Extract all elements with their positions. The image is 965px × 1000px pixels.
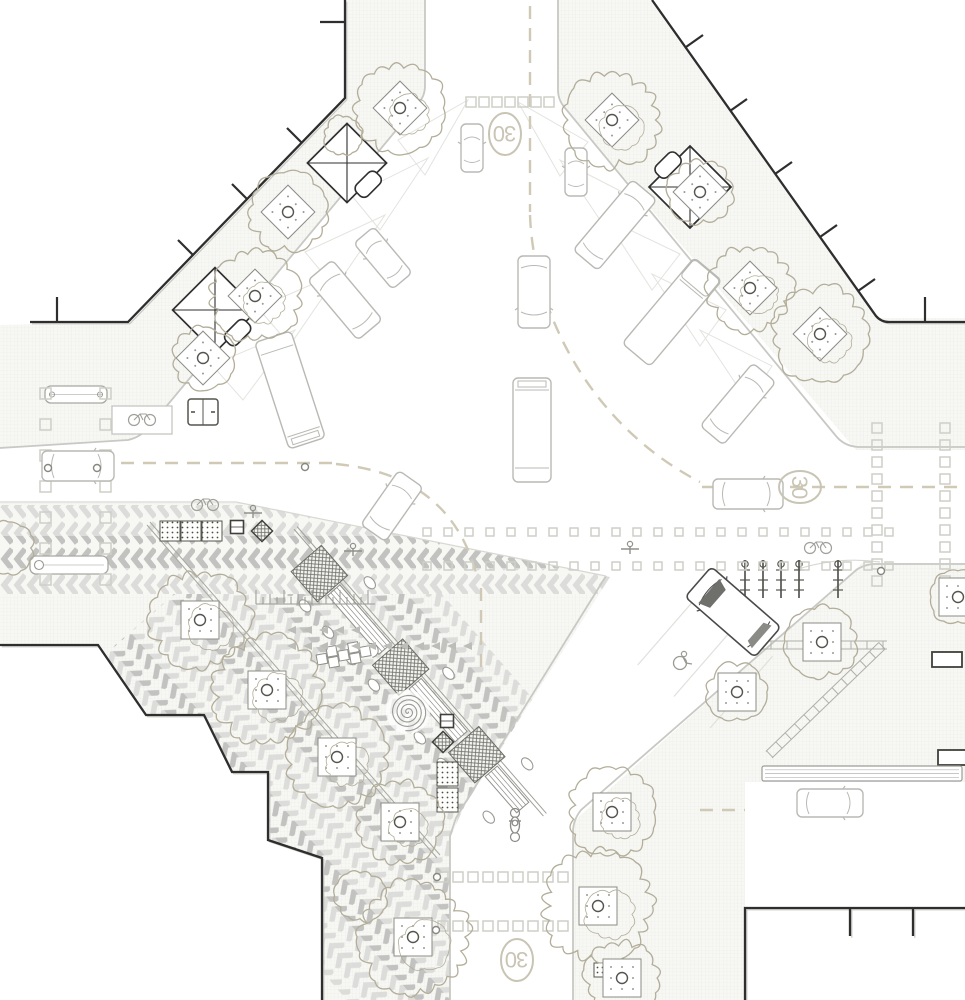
building-bottom-right [745, 908, 965, 1000]
tree-grate [939, 578, 965, 616]
bollard [878, 568, 885, 575]
bikeshare-station [112, 406, 172, 434]
site-plan: 303030 [0, 0, 965, 1000]
planter-dotted [437, 762, 458, 786]
pedestrian-figure [621, 541, 639, 554]
bus-vehicle [513, 378, 551, 482]
bollard [434, 874, 441, 881]
car-vehicle [351, 225, 414, 292]
planter-dotted [437, 788, 458, 812]
van-vehicle [42, 448, 114, 484]
planter-dotted [202, 521, 222, 541]
speed-limit-marking: 30 [501, 939, 533, 981]
utility-box [938, 750, 965, 765]
car-vehicle [458, 124, 486, 172]
tree-grate [718, 673, 756, 711]
plaza-top-left [0, 0, 425, 448]
bus-vehicle [255, 331, 326, 449]
lane-dashed-line [530, 215, 700, 482]
speed-limit-text: 30 [505, 947, 528, 972]
tree-grate [181, 601, 219, 639]
bollard [302, 464, 309, 471]
stool [481, 809, 497, 825]
cyclist-figure [509, 809, 521, 842]
speed-limit-marking: 30 [489, 113, 521, 155]
bollard [94, 465, 101, 472]
car-vehicle [515, 256, 553, 328]
wheelchair-marking [674, 651, 693, 669]
utility-box [932, 652, 962, 667]
tree-grate [603, 959, 641, 997]
speed-limit-text: 30 [493, 121, 516, 146]
stool [519, 756, 535, 772]
planter-dotted [181, 521, 201, 541]
bicycle-marking [805, 542, 832, 554]
car-vehicle [797, 786, 863, 820]
tree-grate [593, 793, 631, 831]
suv-dark [683, 564, 783, 659]
site-plan-canvas: 303030 [0, 0, 965, 1000]
tree-grate [579, 887, 617, 925]
bollard [45, 465, 52, 472]
planter-dotted [160, 521, 180, 541]
car-vehicle [713, 476, 783, 512]
car-vehicle [698, 361, 778, 447]
van-vehicle [305, 258, 384, 342]
truck-vehicle [622, 258, 722, 367]
tree-grate [803, 623, 841, 661]
speed-limit-text: 30 [787, 476, 812, 499]
tree-grate [394, 918, 432, 956]
bollard [433, 927, 440, 934]
